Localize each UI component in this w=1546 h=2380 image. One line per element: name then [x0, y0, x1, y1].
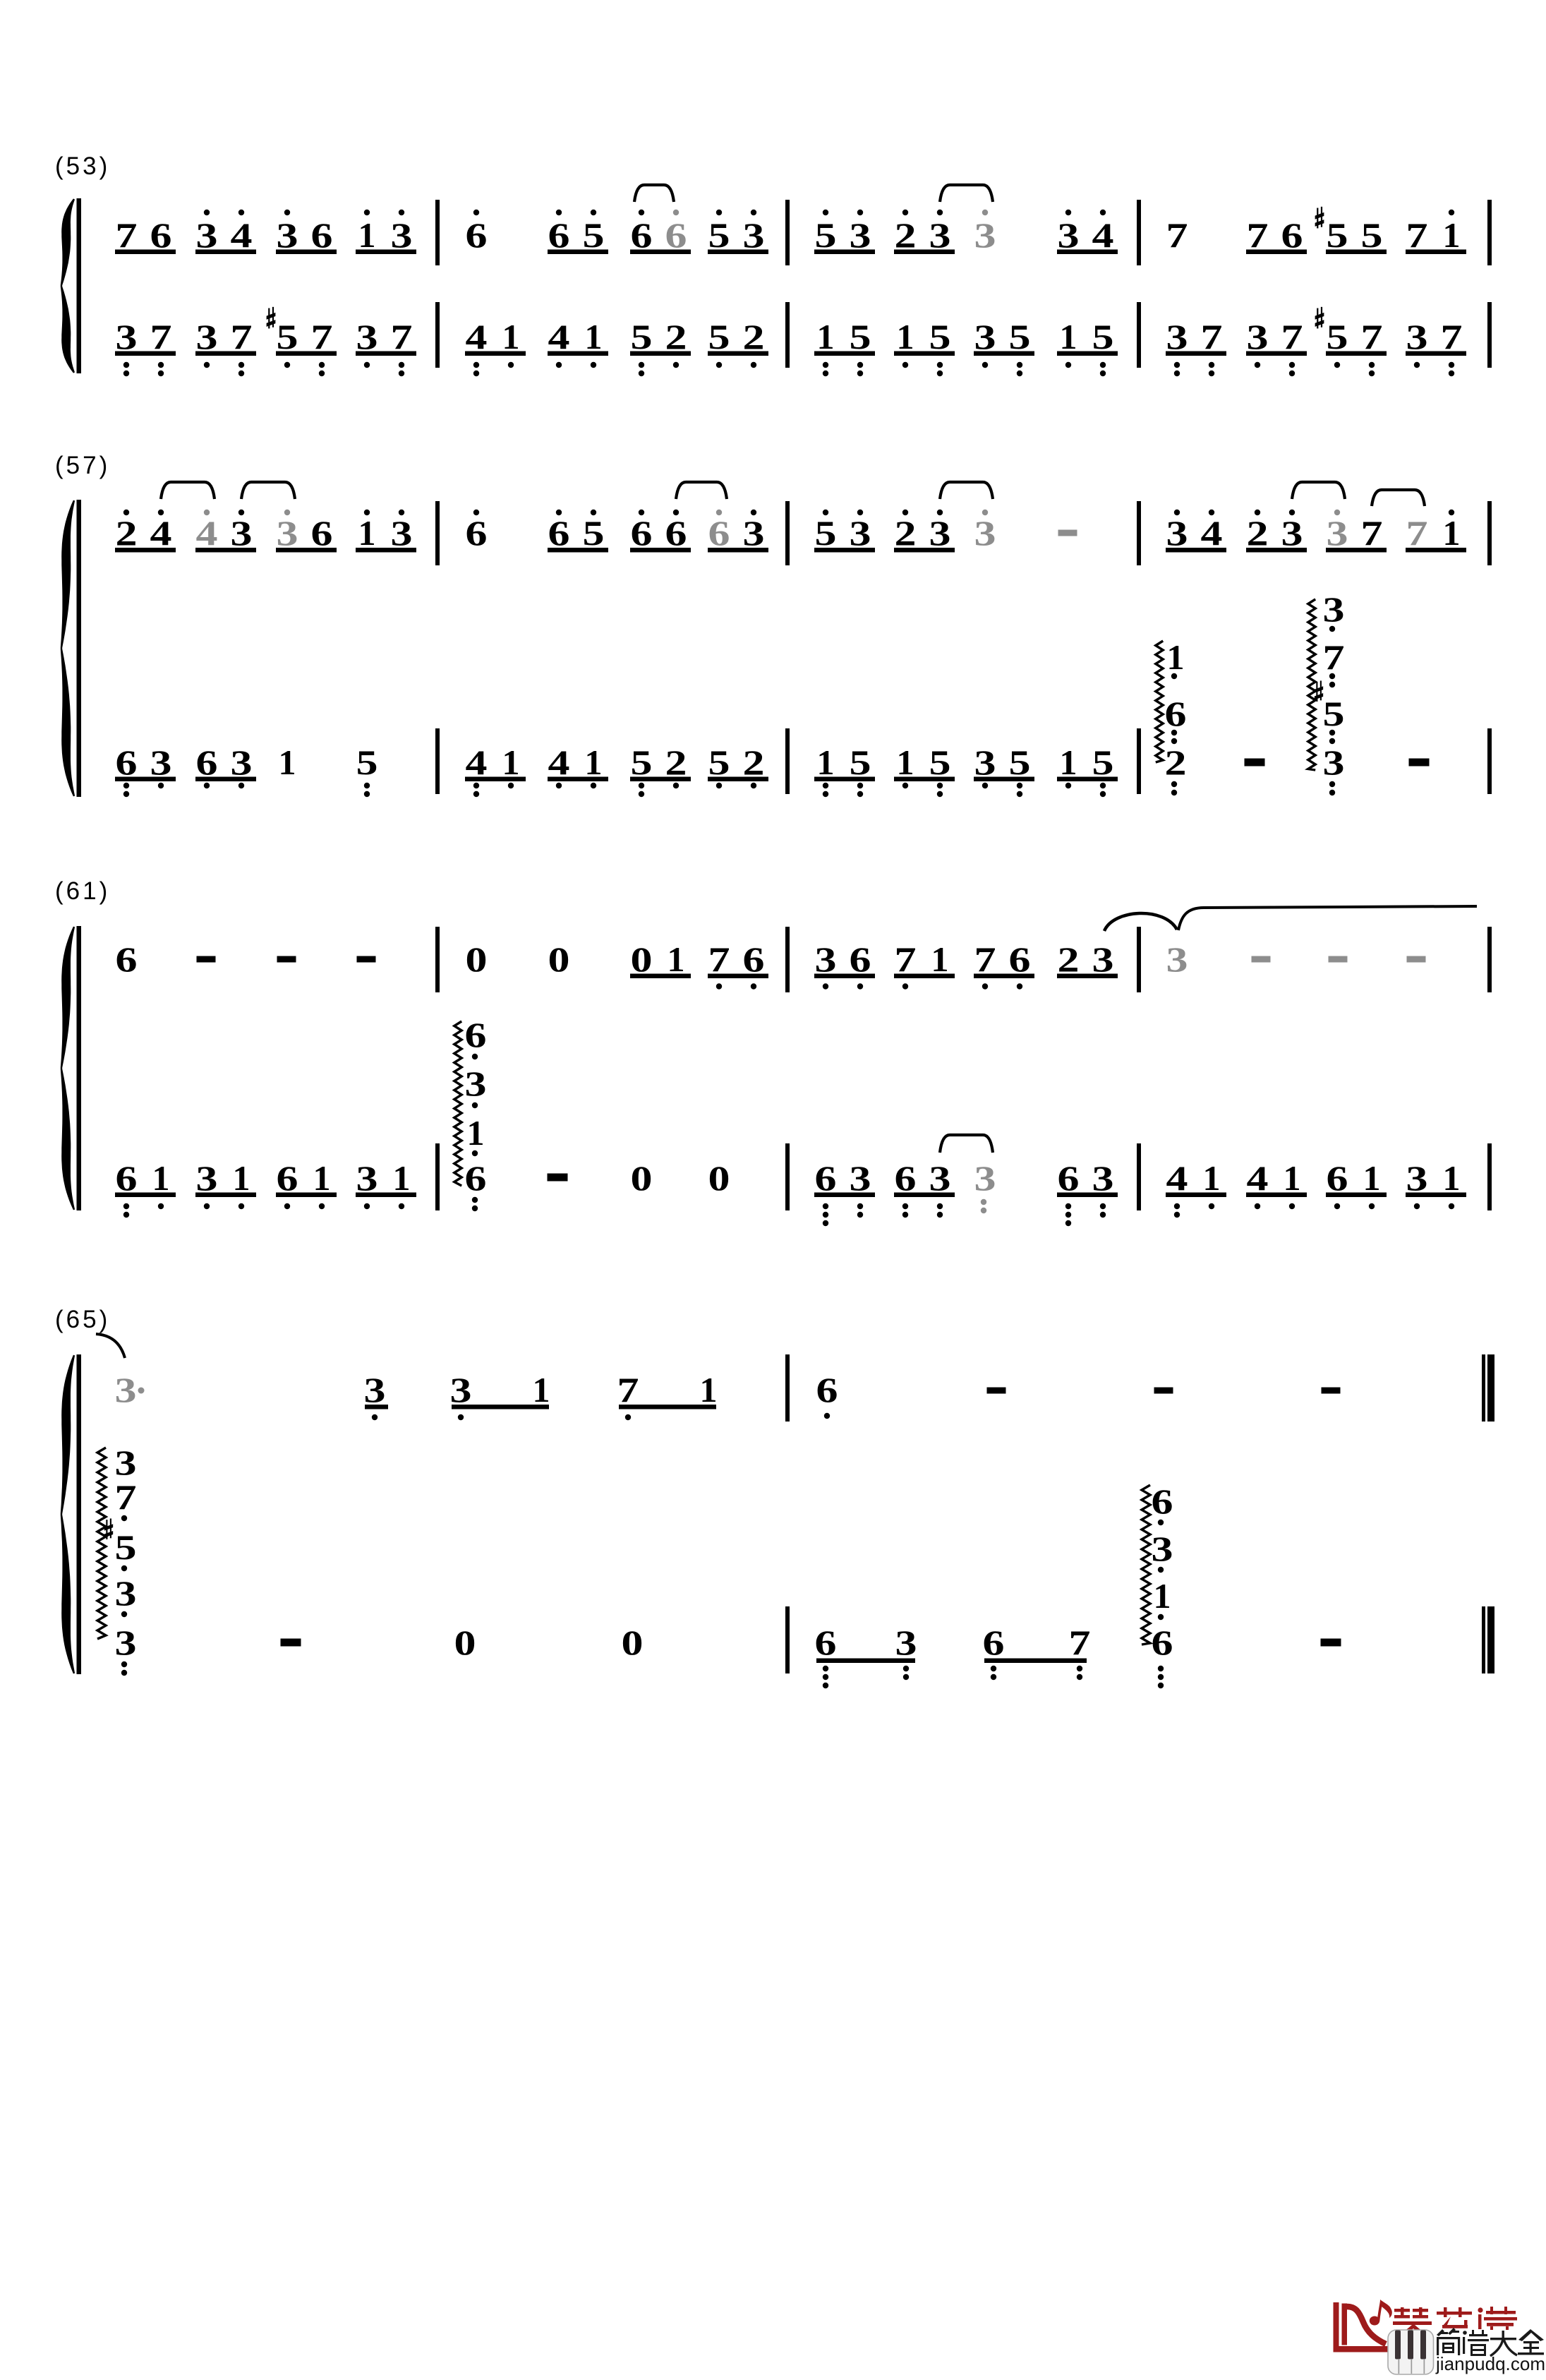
svg-text:6: 6: [116, 939, 138, 979]
svg-text:7: 7: [116, 215, 138, 255]
svg-text:3: 3: [196, 317, 218, 356]
svg-text:6: 6: [311, 513, 333, 553]
svg-text:6: 6: [548, 513, 570, 553]
svg-text:3: 3: [1327, 513, 1348, 553]
svg-text:3: 3: [196, 1158, 218, 1198]
svg-text:5: 5: [1361, 215, 1383, 255]
svg-text:4: 4: [548, 317, 570, 356]
svg-text:7: 7: [895, 939, 917, 979]
svg-text:3: 3: [231, 743, 253, 782]
svg-text:3: 3: [1281, 513, 1303, 553]
svg-text:5: 5: [583, 215, 605, 255]
svg-text:3: 3: [356, 317, 378, 356]
svg-text:3: 3: [465, 1064, 487, 1103]
svg-text:5: 5: [1327, 215, 1348, 255]
svg-text:3: 3: [974, 1158, 996, 1198]
svg-text:6: 6: [1327, 1158, 1348, 1198]
svg-text:jianpudq.com: jianpudq.com: [1435, 2353, 1545, 2374]
svg-text:3: 3: [929, 215, 951, 255]
svg-text:1: 1: [502, 317, 520, 356]
svg-text:3: 3: [743, 513, 765, 553]
svg-text:6: 6: [465, 1015, 487, 1054]
svg-text:2: 2: [1247, 513, 1269, 553]
svg-text:1: 1: [467, 1113, 485, 1153]
svg-text:3: 3: [364, 1370, 386, 1410]
svg-text:1: 1: [393, 1158, 411, 1198]
svg-text:1: 1: [817, 743, 835, 782]
svg-text:2: 2: [1165, 743, 1187, 782]
svg-text:1: 1: [358, 513, 376, 553]
svg-text:1: 1: [1443, 1158, 1461, 1198]
svg-text:3: 3: [1152, 1529, 1173, 1568]
svg-text:3: 3: [356, 1158, 378, 1198]
svg-text:7: 7: [708, 939, 730, 979]
svg-text:5: 5: [708, 743, 730, 782]
svg-text:1: 1: [931, 939, 949, 979]
svg-text:5: 5: [356, 743, 378, 782]
svg-text:5: 5: [815, 513, 837, 553]
svg-text:4: 4: [466, 743, 488, 782]
svg-text:3: 3: [895, 1623, 917, 1662]
svg-text:1: 1: [1203, 1158, 1221, 1198]
svg-text:5: 5: [850, 317, 871, 356]
svg-text:3: 3: [231, 513, 253, 553]
svg-text:3: 3: [850, 1158, 871, 1198]
svg-text:1: 1: [233, 1158, 250, 1198]
svg-text:2: 2: [895, 513, 917, 553]
svg-text:4: 4: [1247, 1158, 1269, 1198]
svg-text:(61): (61): [55, 877, 110, 905]
svg-text:2: 2: [743, 743, 765, 782]
svg-text:1: 1: [897, 317, 914, 356]
svg-text:3: 3: [1247, 317, 1269, 356]
svg-text:1: 1: [313, 1158, 331, 1198]
svg-text:7: 7: [115, 1477, 137, 1517]
svg-text:1: 1: [1167, 637, 1185, 677]
svg-text:3: 3: [277, 513, 298, 553]
svg-text:0: 0: [708, 1158, 730, 1198]
svg-text:1: 1: [1154, 1576, 1171, 1616]
svg-text:4: 4: [548, 743, 570, 782]
svg-text:6: 6: [311, 215, 333, 255]
svg-text:1: 1: [897, 743, 914, 782]
svg-text:5: 5: [1092, 317, 1114, 356]
svg-text:0: 0: [466, 939, 488, 979]
svg-text:(65): (65): [55, 1306, 110, 1333]
svg-text:1: 1: [668, 939, 685, 979]
svg-text:3: 3: [277, 215, 298, 255]
svg-text:6: 6: [1165, 694, 1187, 733]
svg-text:5: 5: [631, 317, 653, 356]
svg-text:3: 3: [1323, 589, 1345, 629]
svg-text:3: 3: [815, 939, 837, 979]
svg-text:4: 4: [196, 513, 218, 553]
svg-text:5: 5: [631, 743, 653, 782]
svg-text:7: 7: [150, 317, 172, 356]
svg-text:6: 6: [815, 1623, 837, 1662]
svg-text:6: 6: [465, 1158, 487, 1198]
svg-text:3: 3: [115, 1573, 137, 1613]
svg-text:3: 3: [1166, 513, 1188, 553]
svg-text:5: 5: [115, 1527, 137, 1567]
svg-text:1: 1: [1060, 317, 1077, 356]
svg-text:6: 6: [548, 215, 570, 255]
svg-text:2: 2: [665, 743, 687, 782]
svg-text:1: 1: [502, 743, 520, 782]
svg-text:1: 1: [585, 743, 603, 782]
svg-text:7: 7: [1201, 317, 1223, 356]
svg-text:6: 6: [665, 513, 687, 553]
svg-text:2: 2: [1058, 939, 1080, 979]
svg-text:3: 3: [1166, 317, 1188, 356]
svg-text:3: 3: [1092, 939, 1114, 979]
svg-text:3: 3: [196, 215, 218, 255]
svg-text:1: 1: [700, 1370, 718, 1410]
svg-text:6: 6: [895, 1158, 917, 1198]
svg-text:7: 7: [1361, 513, 1383, 553]
svg-text:3: 3: [974, 513, 996, 553]
svg-text:1: 1: [817, 317, 835, 356]
svg-text:7: 7: [1441, 317, 1463, 356]
svg-text:7: 7: [1069, 1623, 1091, 1662]
svg-text:0: 0: [548, 939, 570, 979]
svg-text:4: 4: [466, 317, 488, 356]
svg-text:1: 1: [1363, 1158, 1381, 1198]
svg-text:3: 3: [1092, 1158, 1114, 1198]
svg-text:6: 6: [150, 215, 172, 255]
svg-text:3: 3: [1323, 743, 1345, 782]
svg-text:2: 2: [665, 317, 687, 356]
svg-text:1: 1: [1443, 513, 1461, 553]
svg-text:3: 3: [116, 317, 138, 356]
svg-text:7: 7: [311, 317, 333, 356]
svg-text:5: 5: [929, 317, 951, 356]
svg-text:3: 3: [929, 513, 951, 553]
svg-text:6: 6: [816, 1370, 838, 1410]
svg-text:6: 6: [983, 1623, 1005, 1662]
svg-text:6: 6: [743, 939, 765, 979]
svg-text:1: 1: [533, 1370, 550, 1410]
svg-text:2: 2: [116, 513, 138, 553]
svg-text:7: 7: [1281, 317, 1303, 356]
svg-text:1: 1: [1284, 1158, 1301, 1198]
svg-text:6: 6: [665, 215, 687, 255]
svg-text:3: 3: [850, 513, 871, 553]
svg-text:4: 4: [231, 215, 253, 255]
svg-text:3: 3: [1406, 1158, 1428, 1198]
svg-text:3: 3: [974, 743, 996, 782]
svg-text:6: 6: [1152, 1623, 1173, 1662]
svg-text:4: 4: [1166, 1158, 1188, 1198]
svg-text:6: 6: [116, 743, 138, 782]
svg-text:6: 6: [466, 215, 488, 255]
svg-text:6: 6: [631, 513, 653, 553]
svg-text:6: 6: [815, 1158, 837, 1198]
svg-text:3: 3: [974, 215, 996, 255]
svg-text:4: 4: [1092, 215, 1114, 255]
svg-text:3: 3: [115, 1623, 137, 1662]
svg-text:3: 3: [1166, 939, 1188, 979]
svg-text:6: 6: [196, 743, 218, 782]
svg-text:5: 5: [583, 513, 605, 553]
svg-text:3: 3: [1406, 317, 1428, 356]
svg-text:1: 1: [279, 743, 296, 782]
svg-text:3: 3: [115, 1370, 137, 1410]
svg-text:1: 1: [585, 317, 603, 356]
svg-text:4: 4: [1201, 513, 1223, 553]
svg-text:3: 3: [1058, 215, 1080, 255]
svg-text:3: 3: [974, 317, 996, 356]
svg-text:6: 6: [277, 1158, 298, 1198]
svg-text:3: 3: [850, 215, 871, 255]
svg-text:1: 1: [1443, 215, 1461, 255]
svg-text:5: 5: [850, 743, 871, 782]
svg-text:6: 6: [850, 939, 871, 979]
svg-text:7: 7: [1247, 215, 1269, 255]
svg-text:7: 7: [1406, 513, 1428, 553]
svg-text:0: 0: [631, 939, 653, 979]
svg-text:(57): (57): [55, 452, 110, 479]
svg-text:1: 1: [358, 215, 376, 255]
svg-text:3: 3: [391, 215, 413, 255]
svg-text:5: 5: [1092, 743, 1114, 782]
svg-text:3: 3: [391, 513, 413, 553]
svg-text:7: 7: [974, 939, 996, 979]
svg-text:0: 0: [622, 1623, 644, 1662]
svg-text:5: 5: [1009, 317, 1031, 356]
svg-text:5: 5: [929, 743, 951, 782]
svg-text:5: 5: [708, 317, 730, 356]
svg-text:6: 6: [466, 513, 488, 553]
svg-text:3: 3: [115, 1443, 137, 1482]
svg-text:5: 5: [1323, 694, 1345, 733]
svg-text:5: 5: [1009, 743, 1031, 782]
svg-text:7: 7: [231, 317, 253, 356]
svg-text:2: 2: [743, 317, 765, 356]
svg-text:4: 4: [150, 513, 172, 553]
svg-text:(53): (53): [55, 152, 110, 180]
svg-text:0: 0: [631, 1158, 653, 1198]
svg-text:5: 5: [815, 215, 837, 255]
svg-text:7: 7: [391, 317, 413, 356]
svg-text:3: 3: [929, 1158, 951, 1198]
svg-text:3: 3: [743, 215, 765, 255]
svg-text:6: 6: [1152, 1482, 1173, 1521]
svg-text:3: 3: [150, 743, 172, 782]
svg-text:5: 5: [708, 215, 730, 255]
svg-text:6: 6: [631, 215, 653, 255]
svg-text:6: 6: [116, 1158, 138, 1198]
svg-text:1: 1: [152, 1158, 170, 1198]
svg-text:5: 5: [277, 317, 298, 356]
svg-text:0: 0: [454, 1623, 476, 1662]
svg-text:7: 7: [1323, 637, 1345, 677]
svg-text:7: 7: [1361, 317, 1383, 356]
svg-text:6: 6: [1058, 1158, 1080, 1198]
svg-text:3: 3: [450, 1370, 472, 1410]
svg-text:7: 7: [1166, 215, 1188, 255]
svg-text:6: 6: [708, 513, 730, 553]
svg-text:1: 1: [1060, 743, 1077, 782]
svg-text:7: 7: [1406, 215, 1428, 255]
svg-text:6: 6: [1281, 215, 1303, 255]
svg-text:2: 2: [895, 215, 917, 255]
svg-text:6: 6: [1009, 939, 1031, 979]
svg-text:5: 5: [1327, 317, 1348, 356]
svg-text:7: 7: [617, 1370, 639, 1410]
